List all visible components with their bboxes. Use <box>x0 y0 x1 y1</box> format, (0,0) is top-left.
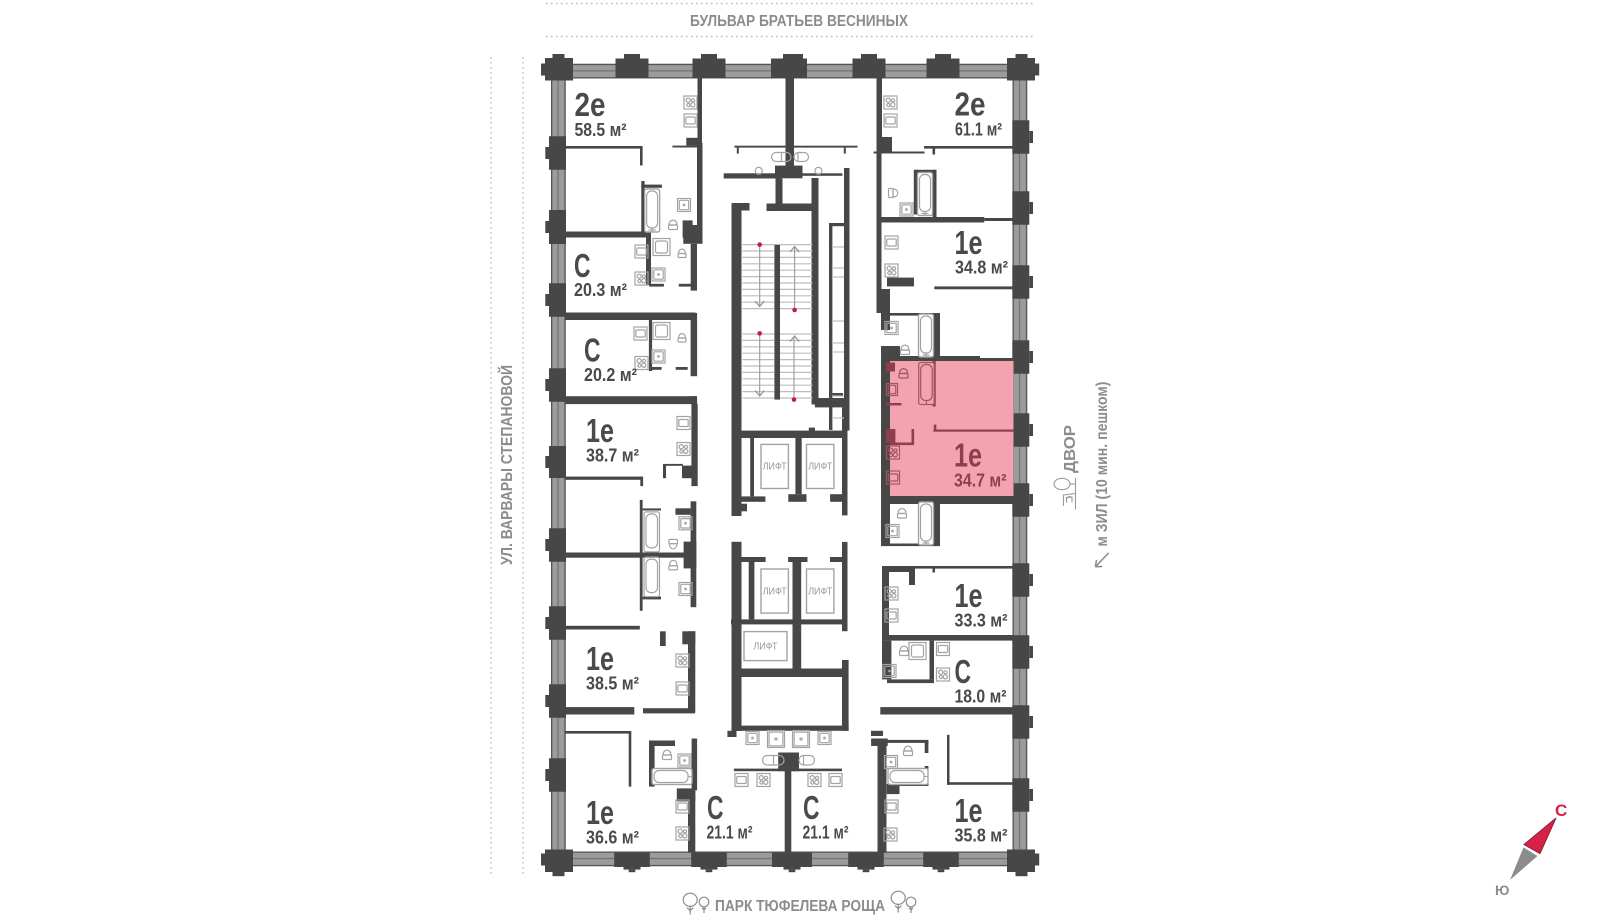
svg-text:20.3 м²: 20.3 м² <box>574 280 627 300</box>
svg-text:С: С <box>955 653 972 690</box>
svg-text:34.7 м²: 34.7 м² <box>954 470 1007 490</box>
svg-text:2е: 2е <box>575 86 606 123</box>
svg-text:С: С <box>574 247 591 284</box>
svg-text:ЛИФТ: ЛИФТ <box>808 462 832 473</box>
svg-text:ЛИФТ: ЛИФТ <box>754 642 778 653</box>
svg-text:1е: 1е <box>586 640 614 677</box>
svg-text:Ю: Ю <box>1495 882 1509 898</box>
svg-text:ЛИФТ: ЛИФТ <box>808 587 832 598</box>
svg-text:1е: 1е <box>586 794 614 831</box>
svg-text:38.5 м²: 38.5 м² <box>586 674 639 694</box>
svg-text:20.2 м²: 20.2 м² <box>584 365 637 385</box>
svg-text:38.7 м²: 38.7 м² <box>586 446 639 466</box>
svg-text:2е: 2е <box>955 86 986 123</box>
svg-text:ЛИФТ: ЛИФТ <box>763 462 787 473</box>
svg-text:1е: 1е <box>955 224 983 261</box>
svg-text:18.0 м²: 18.0 м² <box>955 687 1007 707</box>
svg-text:33.3 м²: 33.3 м² <box>955 611 1008 631</box>
svg-text:С: С <box>1555 801 1567 820</box>
svg-text:61.1 м²: 61.1 м² <box>955 119 1002 139</box>
svg-text:С: С <box>584 332 601 369</box>
svg-text:1е: 1е <box>586 412 614 449</box>
svg-text:1е: 1е <box>954 437 982 474</box>
svg-text:ЛИФТ: ЛИФТ <box>763 587 787 598</box>
svg-text:С: С <box>707 789 724 826</box>
svg-text:36.6 м²: 36.6 м² <box>586 828 639 848</box>
svg-text:58.5 м²: 58.5 м² <box>575 120 627 140</box>
svg-text:35.8 м²: 35.8 м² <box>955 826 1008 846</box>
svg-text:ПАРК ТЮФЕЛЕВА РОЩА: ПАРК ТЮФЕЛЕВА РОЩА <box>715 898 885 915</box>
svg-text:УЛ. ВАРВАРЫ СТЕПАНОВОЙ: УЛ. ВАРВАРЫ СТЕПАНОВОЙ <box>498 365 516 565</box>
svg-text:БУЛЬВАР БРАТЬЕВ ВЕСНИНЫХ: БУЛЬВАР БРАТЬЕВ ВЕСНИНЫХ <box>690 13 909 30</box>
svg-text:м ЗИЛ (10 мин. пешком): м ЗИЛ (10 мин. пешком) <box>1094 382 1111 547</box>
svg-text:34.8 м²: 34.8 м² <box>955 258 1008 278</box>
svg-text:1е: 1е <box>955 577 983 614</box>
svg-text:ДВОР: ДВОР <box>1062 425 1079 473</box>
svg-text:21.1 м²: 21.1 м² <box>707 823 753 843</box>
svg-text:21.1 м²: 21.1 м² <box>803 823 849 843</box>
svg-text:С: С <box>803 789 820 826</box>
svg-text:1е: 1е <box>955 792 983 829</box>
